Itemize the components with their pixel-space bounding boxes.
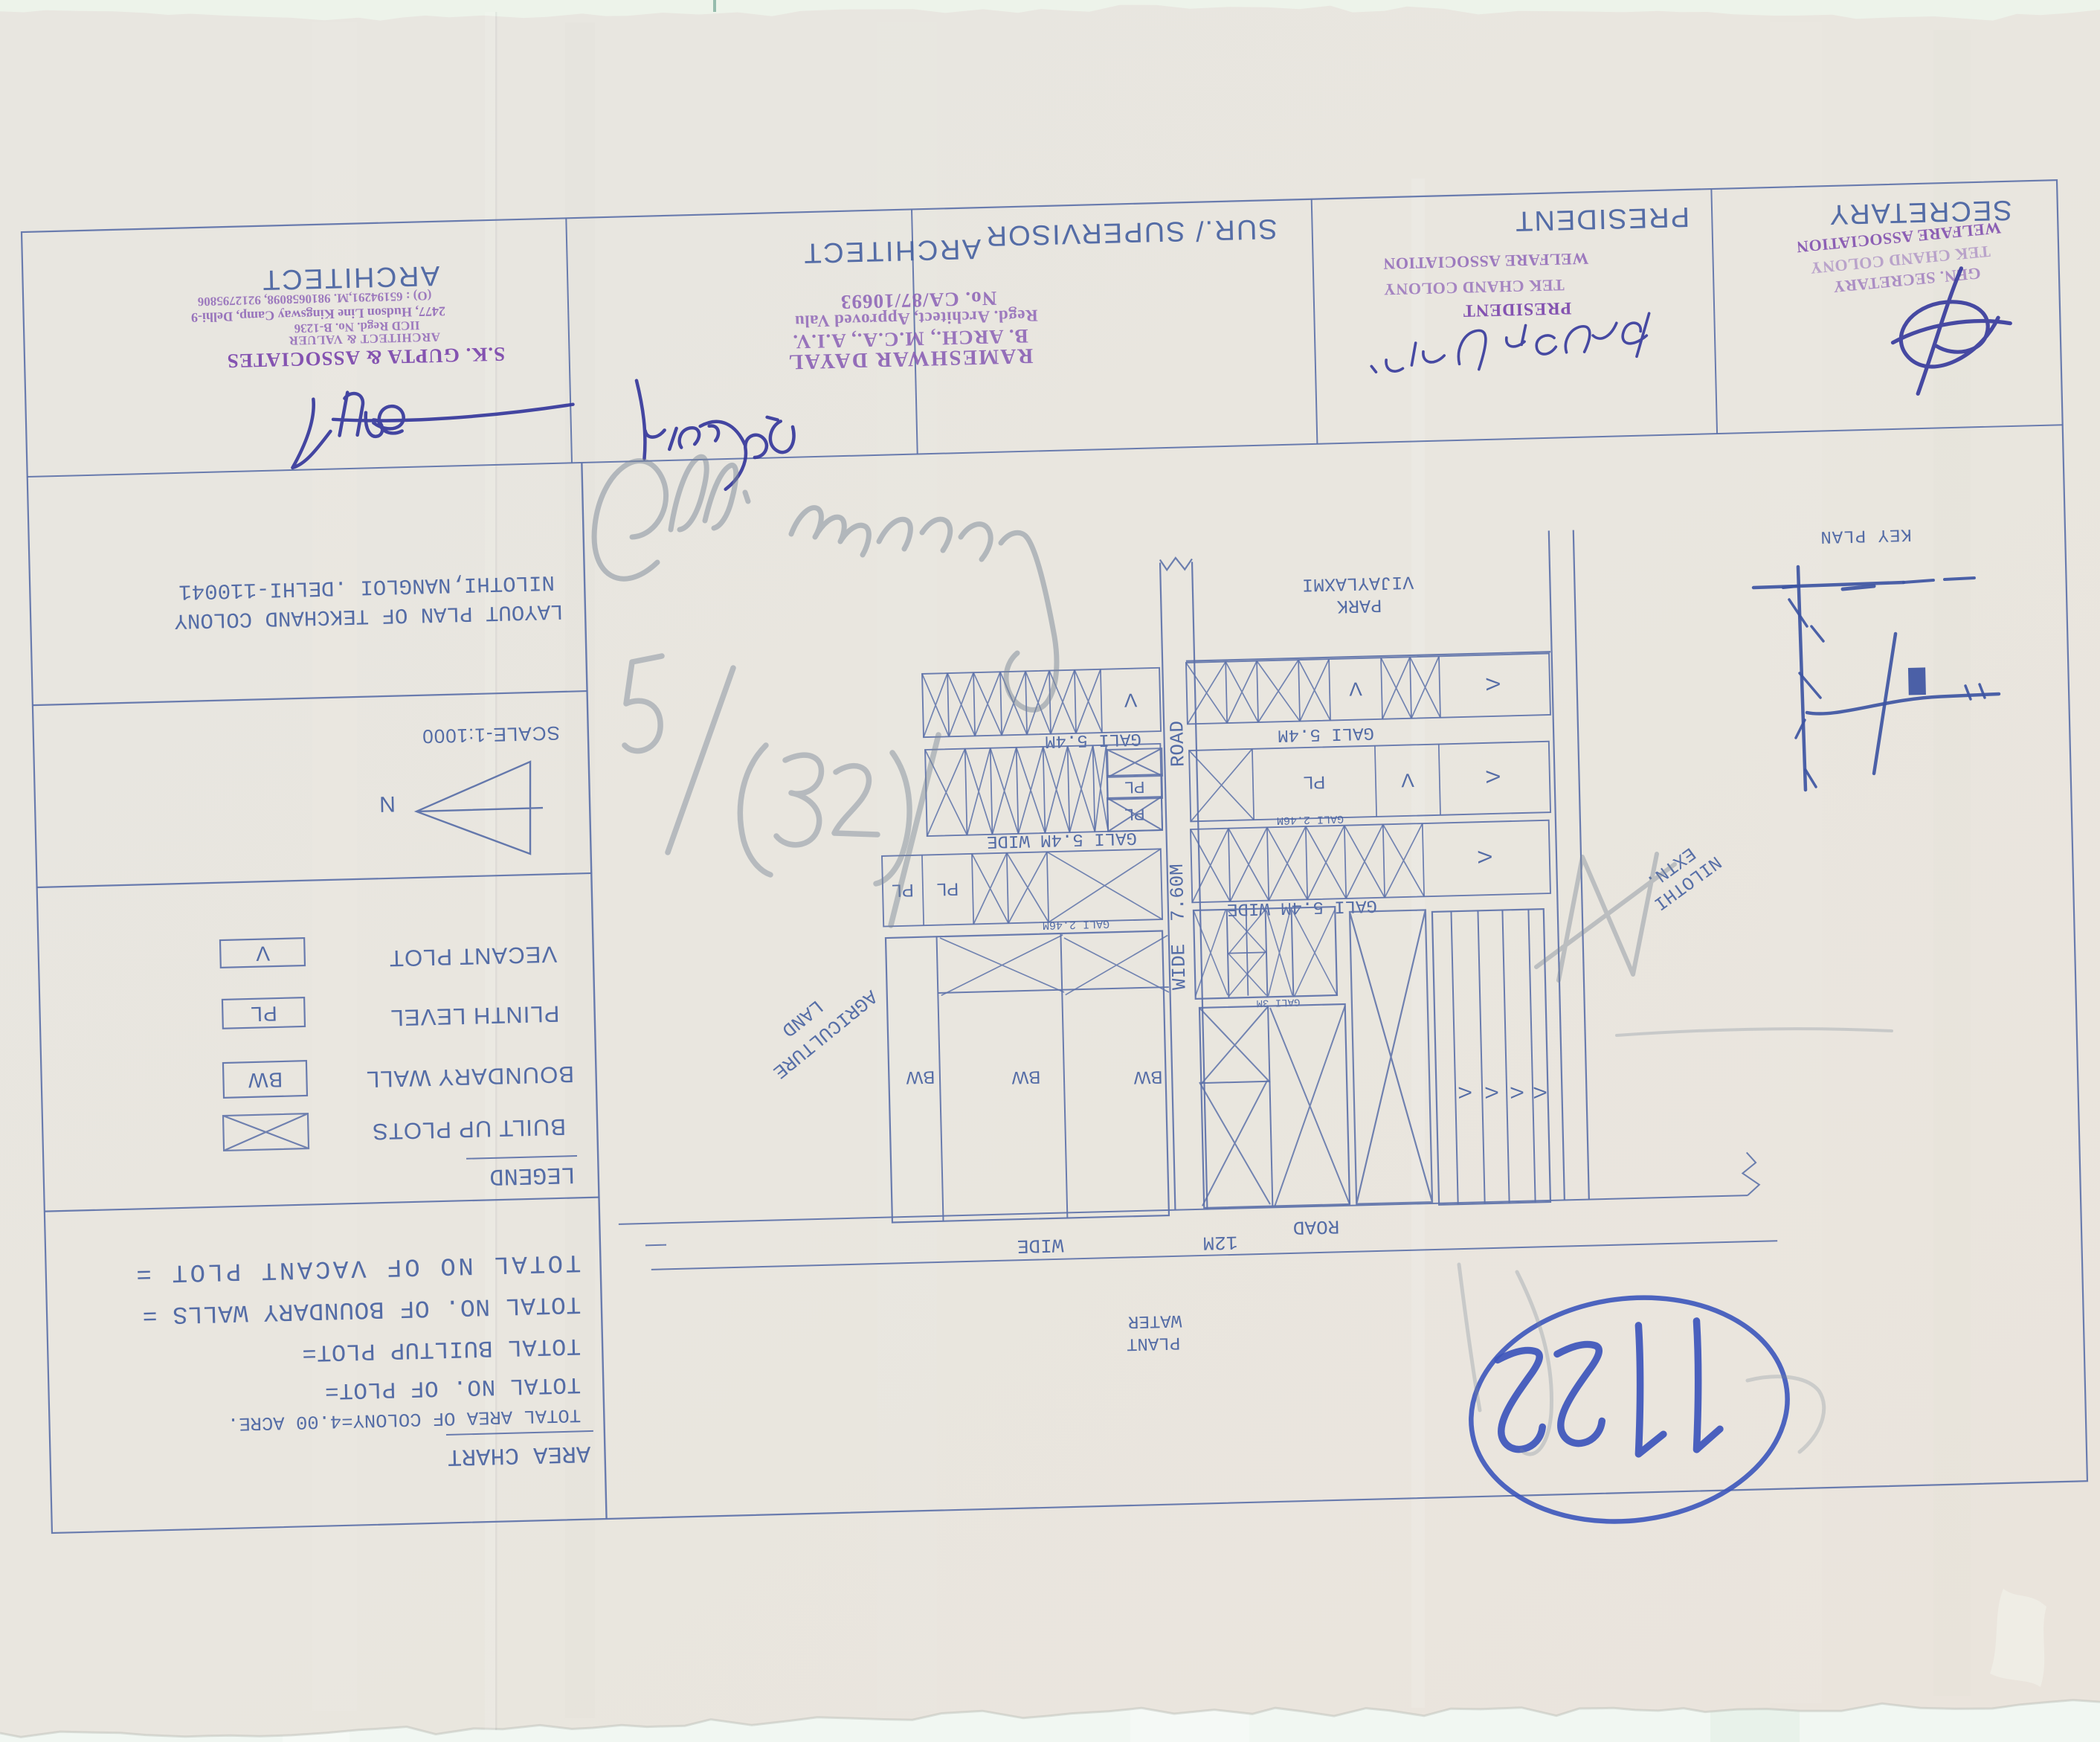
svg-text:BW: BW xyxy=(1133,1067,1163,1087)
svg-text:GALI 5.4M WIDE: GALI 5.4M WIDE xyxy=(987,827,1138,851)
svg-text:V: V xyxy=(1348,678,1362,698)
svg-text:BW: BW xyxy=(1011,1067,1041,1087)
svg-text:V: V xyxy=(1530,1087,1550,1099)
svg-text:PLANT: PLANT xyxy=(1127,1332,1181,1354)
svg-text:ARCHITECT: ARCHITECT xyxy=(802,233,981,269)
svg-text:7.60M: 7.60M xyxy=(1166,864,1190,922)
svg-text:V: V xyxy=(1475,849,1496,864)
svg-text:KEY PLAN: KEY PLAN xyxy=(1820,524,1912,546)
svg-text:GALI 5.4M WIDE: GALI 5.4M WIDE xyxy=(1227,895,1378,919)
svg-text:PL: PL xyxy=(1124,778,1145,797)
svg-text:SCALE-1:1000: SCALE-1:1000 xyxy=(422,722,560,747)
svg-text:VIJAYLAXMI: VIJAYLAXMI xyxy=(1302,571,1414,595)
svg-text:ROAD: ROAD xyxy=(1292,1215,1339,1238)
svg-text:PL: PL xyxy=(936,878,959,899)
svg-text:V: V xyxy=(1507,1087,1527,1099)
svg-text:GALI 2.46M: GALI 2.46M xyxy=(1043,917,1110,931)
svg-text:V: V xyxy=(1455,1087,1475,1099)
svg-text:12M: 12M xyxy=(1202,1231,1238,1254)
svg-text:ROAD: ROAD xyxy=(1166,721,1190,768)
svg-text:V: V xyxy=(1483,677,1504,691)
svg-text:PRESIDENT: PRESIDENT xyxy=(1462,298,1571,321)
svg-text:PL: PL xyxy=(250,1002,277,1026)
svg-text:BW: BW xyxy=(906,1067,935,1087)
svg-text:LEGEND: LEGEND xyxy=(489,1160,576,1190)
svg-text:PARK: PARK xyxy=(1337,594,1382,616)
svg-text:VECANT PLOT: VECANT PLOT xyxy=(389,942,558,972)
svg-text:V: V xyxy=(1124,689,1138,710)
svg-text:BOUNDARY WALL: BOUNDARY WALL xyxy=(366,1061,575,1093)
svg-text:AREA CHART: AREA CHART xyxy=(447,1439,590,1471)
svg-text:WIDE: WIDE xyxy=(1017,1233,1063,1256)
svg-text:PRESIDENT: PRESIDENT xyxy=(1514,201,1690,237)
svg-text:V: V xyxy=(1400,769,1414,790)
svg-text:V: V xyxy=(255,942,270,965)
svg-text:V: V xyxy=(1483,770,1504,784)
svg-text:PL: PL xyxy=(1303,772,1325,793)
svg-text:V: V xyxy=(1482,1087,1502,1099)
svg-text:N: N xyxy=(379,791,396,816)
svg-text:PLINTH LEVEL: PLINTH LEVEL xyxy=(390,1000,560,1031)
svg-text:BUILT UP PLOTS: BUILT UP PLOTS xyxy=(372,1114,567,1145)
svg-text:BW: BW xyxy=(248,1068,283,1092)
svg-text:WATER: WATER xyxy=(1128,1310,1182,1331)
svg-text:WIDE: WIDE xyxy=(1167,944,1191,991)
svg-text:GALI 5.4M: GALI 5.4M xyxy=(1278,722,1374,745)
svg-text:GALI 2.46M: GALI 2.46M xyxy=(1277,812,1344,826)
